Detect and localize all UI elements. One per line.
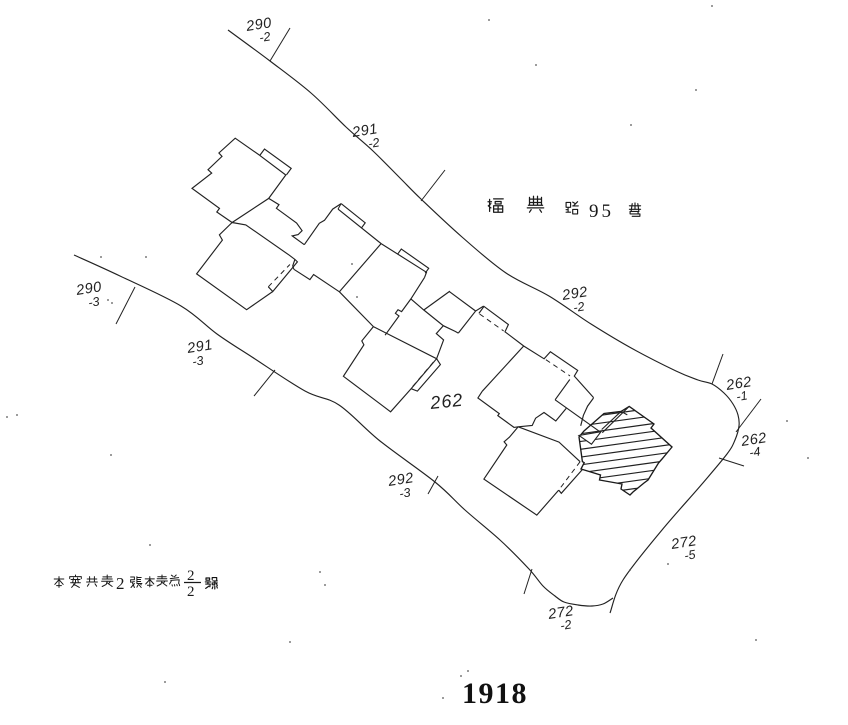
svg-text:95: 95	[589, 201, 614, 222]
svg-text:2: 2	[187, 584, 195, 600]
svg-text:-3: -3	[191, 353, 204, 369]
svg-text:-3: -3	[87, 294, 100, 310]
svg-text:-3: -3	[398, 485, 411, 501]
svg-text:-1: -1	[735, 388, 748, 404]
svg-text:-2: -2	[367, 135, 380, 151]
svg-text:-4: -4	[748, 444, 761, 460]
svg-text:-2: -2	[559, 617, 572, 633]
svg-text:1918: 1918	[462, 677, 528, 710]
svg-text:-2: -2	[258, 29, 271, 45]
svg-text:-2: -2	[572, 299, 585, 315]
svg-text:2: 2	[116, 574, 125, 593]
svg-text:-5: -5	[683, 547, 696, 563]
svg-text:2: 2	[187, 568, 195, 584]
svg-text:262: 262	[428, 390, 464, 413]
